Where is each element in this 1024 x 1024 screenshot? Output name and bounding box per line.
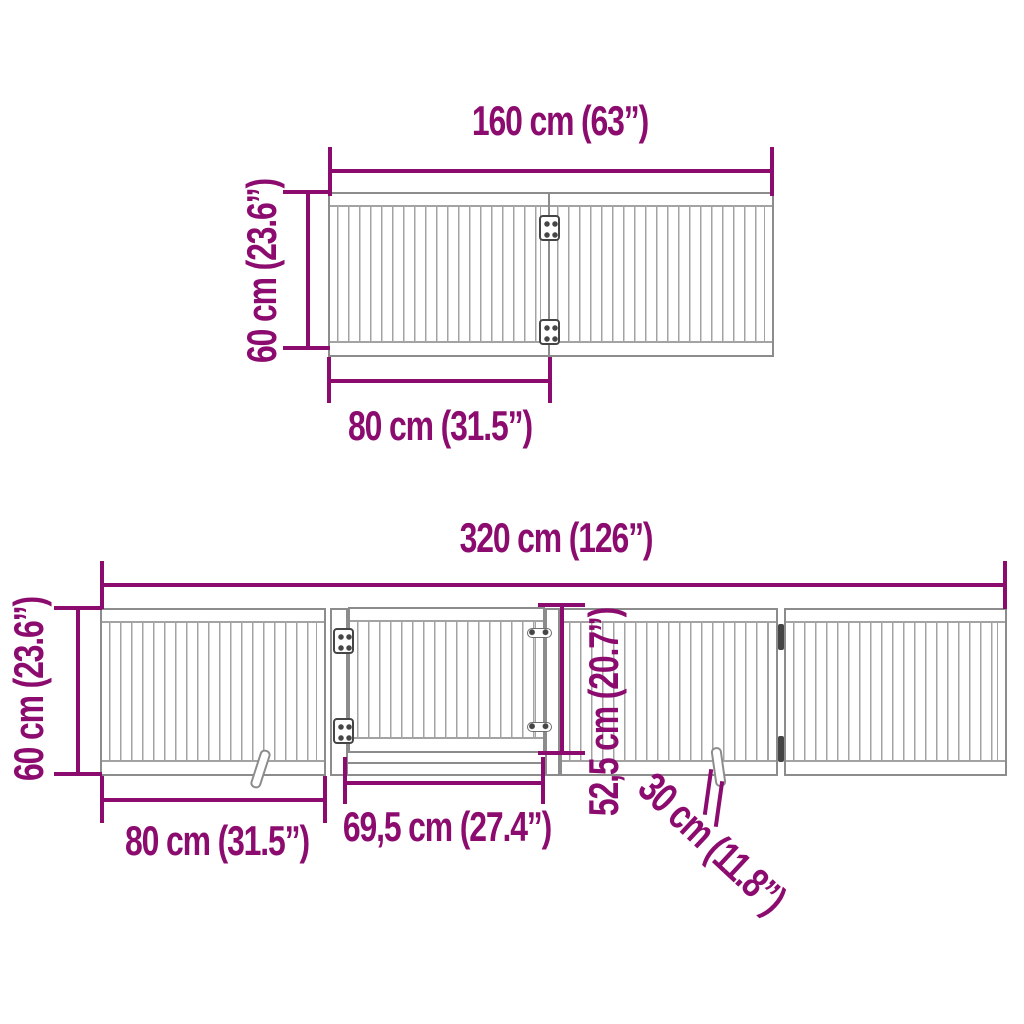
- dim-tick: [538, 603, 585, 607]
- bottom-gate-door: [348, 607, 545, 753]
- dimension-diagram: 160 cm (63”) 60 cm (23.6”) 80 cm (31.5”): [0, 0, 1024, 1024]
- dim-line-panel-width: [102, 798, 327, 802]
- latch-bolt-icon: [527, 628, 552, 638]
- dim-tick: [54, 606, 102, 610]
- dim-tick: [54, 772, 102, 776]
- panel-slats: [557, 207, 765, 341]
- panel-hinge-icon: [778, 624, 784, 650]
- dim-tick: [541, 757, 545, 804]
- door-height-label: 52,5 cm (20.7”): [583, 608, 625, 816]
- panel-bottom-rail: [786, 760, 1005, 762]
- top-gate-panel-left: [328, 192, 550, 357]
- bottom-panel-width-label: 80 cm (31.5”): [125, 820, 309, 862]
- hinge-icon: [539, 319, 560, 345]
- bottom-gate-panel-4: [784, 608, 1007, 776]
- panel-bottom-rail: [102, 760, 324, 762]
- top-panel-width-label: 80 cm (31.5”): [348, 405, 532, 447]
- dim-tick: [100, 561, 104, 609]
- dim-line-door-height: [560, 605, 564, 755]
- dim-line-total-width: [102, 583, 1007, 587]
- dim-tick: [770, 147, 774, 196]
- foot-length-label: 30 cm (11.8”): [631, 766, 793, 921]
- hinge-icon: [539, 215, 560, 241]
- dim-tick: [548, 357, 552, 403]
- panel-bottom-rail: [330, 341, 548, 343]
- dim-tick: [1003, 561, 1007, 609]
- latch-bolt-icon: [527, 722, 552, 732]
- dim-line-total-width: [330, 169, 772, 173]
- panel-hinge-icon: [778, 736, 784, 762]
- dim-line-door-width: [345, 781, 545, 785]
- panel-slats: [109, 623, 317, 760]
- bottom-gate-panel-1: [100, 608, 326, 776]
- dim-tick: [327, 357, 331, 403]
- dim-line-panel-width: [327, 379, 552, 383]
- bottom-height-label: 60 cm (23.6”): [8, 597, 50, 781]
- panel-bottom-rail: [350, 737, 543, 739]
- dim-tick: [538, 751, 585, 755]
- dim-tick: [343, 757, 347, 804]
- panel-slats: [337, 207, 541, 341]
- dim-line-height: [306, 192, 310, 350]
- door-threshold-bar: [348, 762, 545, 776]
- dim-line-height: [76, 608, 80, 776]
- bottom-total-width-label: 320 cm (126”): [460, 517, 653, 559]
- panel-bottom-rail: [550, 341, 772, 343]
- dim-tick: [323, 776, 327, 823]
- door-width-label: 69,5 cm (27.4”): [343, 806, 551, 848]
- panel-slats: [793, 623, 998, 760]
- panel-slats: [357, 622, 536, 737]
- dim-tick: [283, 346, 330, 350]
- door-hinge-icon: [333, 718, 354, 744]
- dim-tick: [328, 147, 332, 196]
- dim-tick: [100, 776, 104, 823]
- dim-tick: [283, 190, 330, 194]
- top-height-label: 60 cm (23.6”): [241, 179, 283, 363]
- door-hinge-icon: [333, 628, 354, 654]
- top-total-width-label: 160 cm (63”): [472, 100, 648, 142]
- top-gate-panel-right: [548, 192, 774, 357]
